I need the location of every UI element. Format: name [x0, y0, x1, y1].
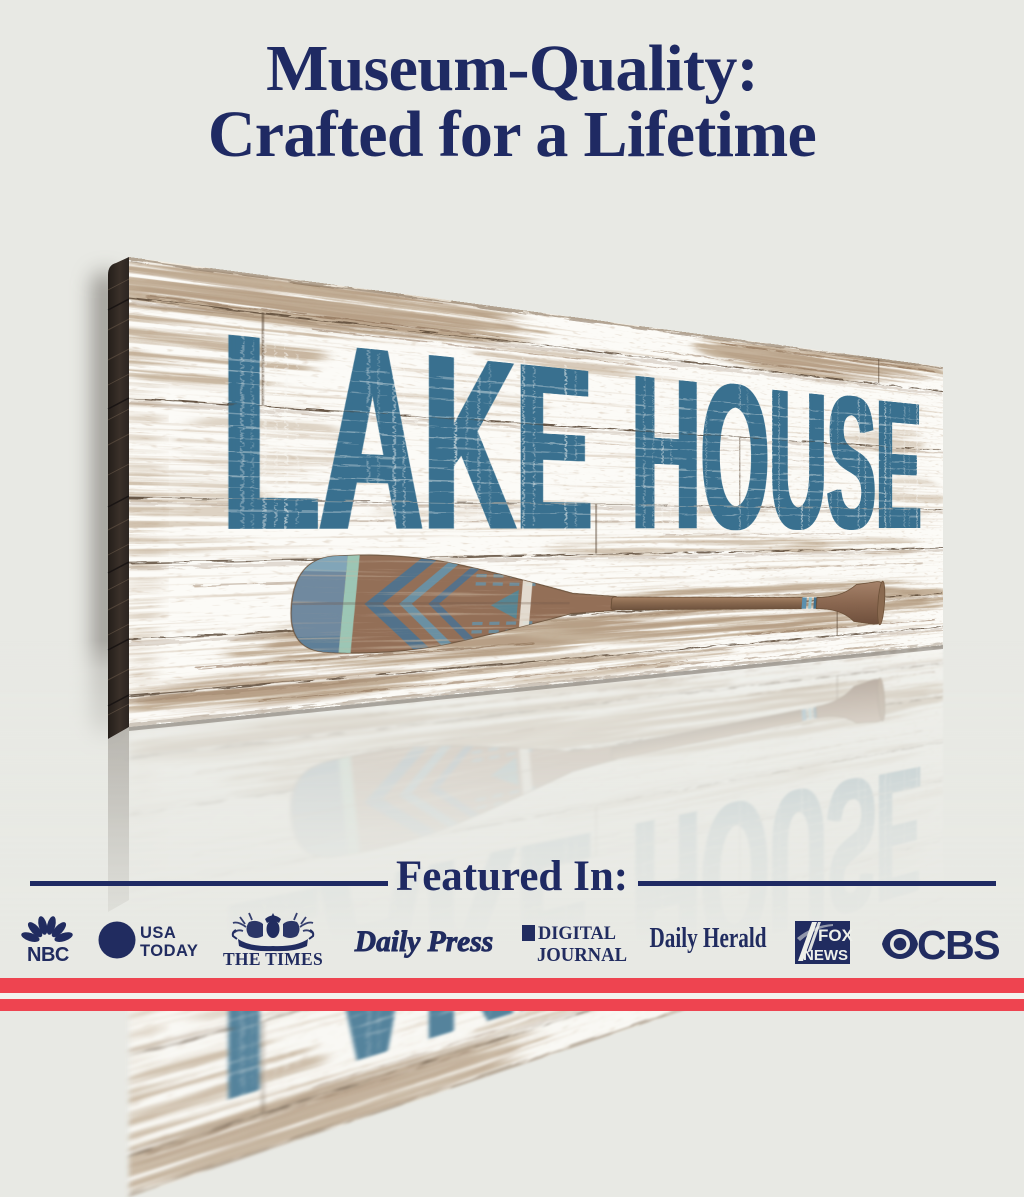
svg-text:Daily Herald: Daily Herald [650, 922, 767, 954]
svg-text:CBS: CBS [917, 922, 999, 968]
svg-text:THE TIMES: THE TIMES [223, 949, 323, 969]
svg-text:NEWS: NEWS [803, 947, 848, 964]
svg-text:JOURNAL: JOURNAL [537, 944, 627, 966]
svg-text:USA: USA [140, 924, 176, 942]
svg-text:DIGITAL: DIGITAL [538, 923, 616, 944]
svg-text:FOX: FOX [818, 926, 854, 945]
svg-text:TODAY: TODAY [140, 942, 198, 960]
svg-text:Daily Press: Daily Press [354, 926, 493, 958]
svg-text:NBC: NBC [27, 944, 69, 966]
